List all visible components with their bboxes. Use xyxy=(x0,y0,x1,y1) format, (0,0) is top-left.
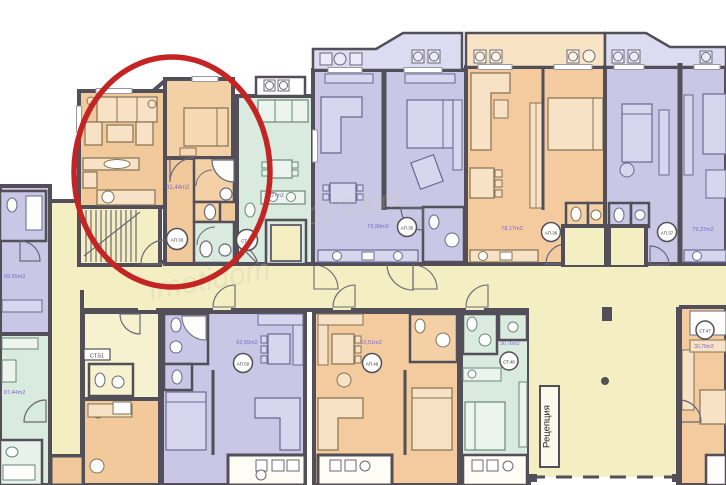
svg-text:30,76m2: 30,76m2 xyxy=(694,344,714,350)
svg-text:АП.36: АП.36 xyxy=(545,231,558,236)
svg-text:СТ.47: СТ.47 xyxy=(699,329,711,334)
svg-text:81,44m2: 81,44m2 xyxy=(166,185,190,191)
svg-text:АП.50: АП.50 xyxy=(237,362,250,367)
svg-text:87,44m2: 87,44m2 xyxy=(4,390,25,396)
svg-text:АП.35: АП.35 xyxy=(401,226,414,231)
svg-text:73,99m2: 73,99m2 xyxy=(367,224,388,230)
svg-text:62,51m2: 62,51m2 xyxy=(360,340,381,346)
svg-text:АП.49: АП.49 xyxy=(366,362,379,367)
svg-text:30,76m2: 30,76m2 xyxy=(500,341,520,347)
svg-text:СТ.48: СТ.48 xyxy=(503,360,515,365)
svg-text:АП.37: АП.37 xyxy=(661,231,674,236)
svg-text:69,55m2: 69,55m2 xyxy=(4,274,25,280)
svg-text:78,17m2: 78,17m2 xyxy=(501,226,522,232)
svg-text:АП.33: АП.33 xyxy=(171,238,184,243)
svg-text:62,65m2: 62,65m2 xyxy=(236,340,257,346)
svg-text:Рецепция: Рецепция xyxy=(542,405,553,448)
svg-text:79,37m2: 79,37m2 xyxy=(692,227,713,233)
svg-text:СТ.51: СТ.51 xyxy=(90,354,104,360)
